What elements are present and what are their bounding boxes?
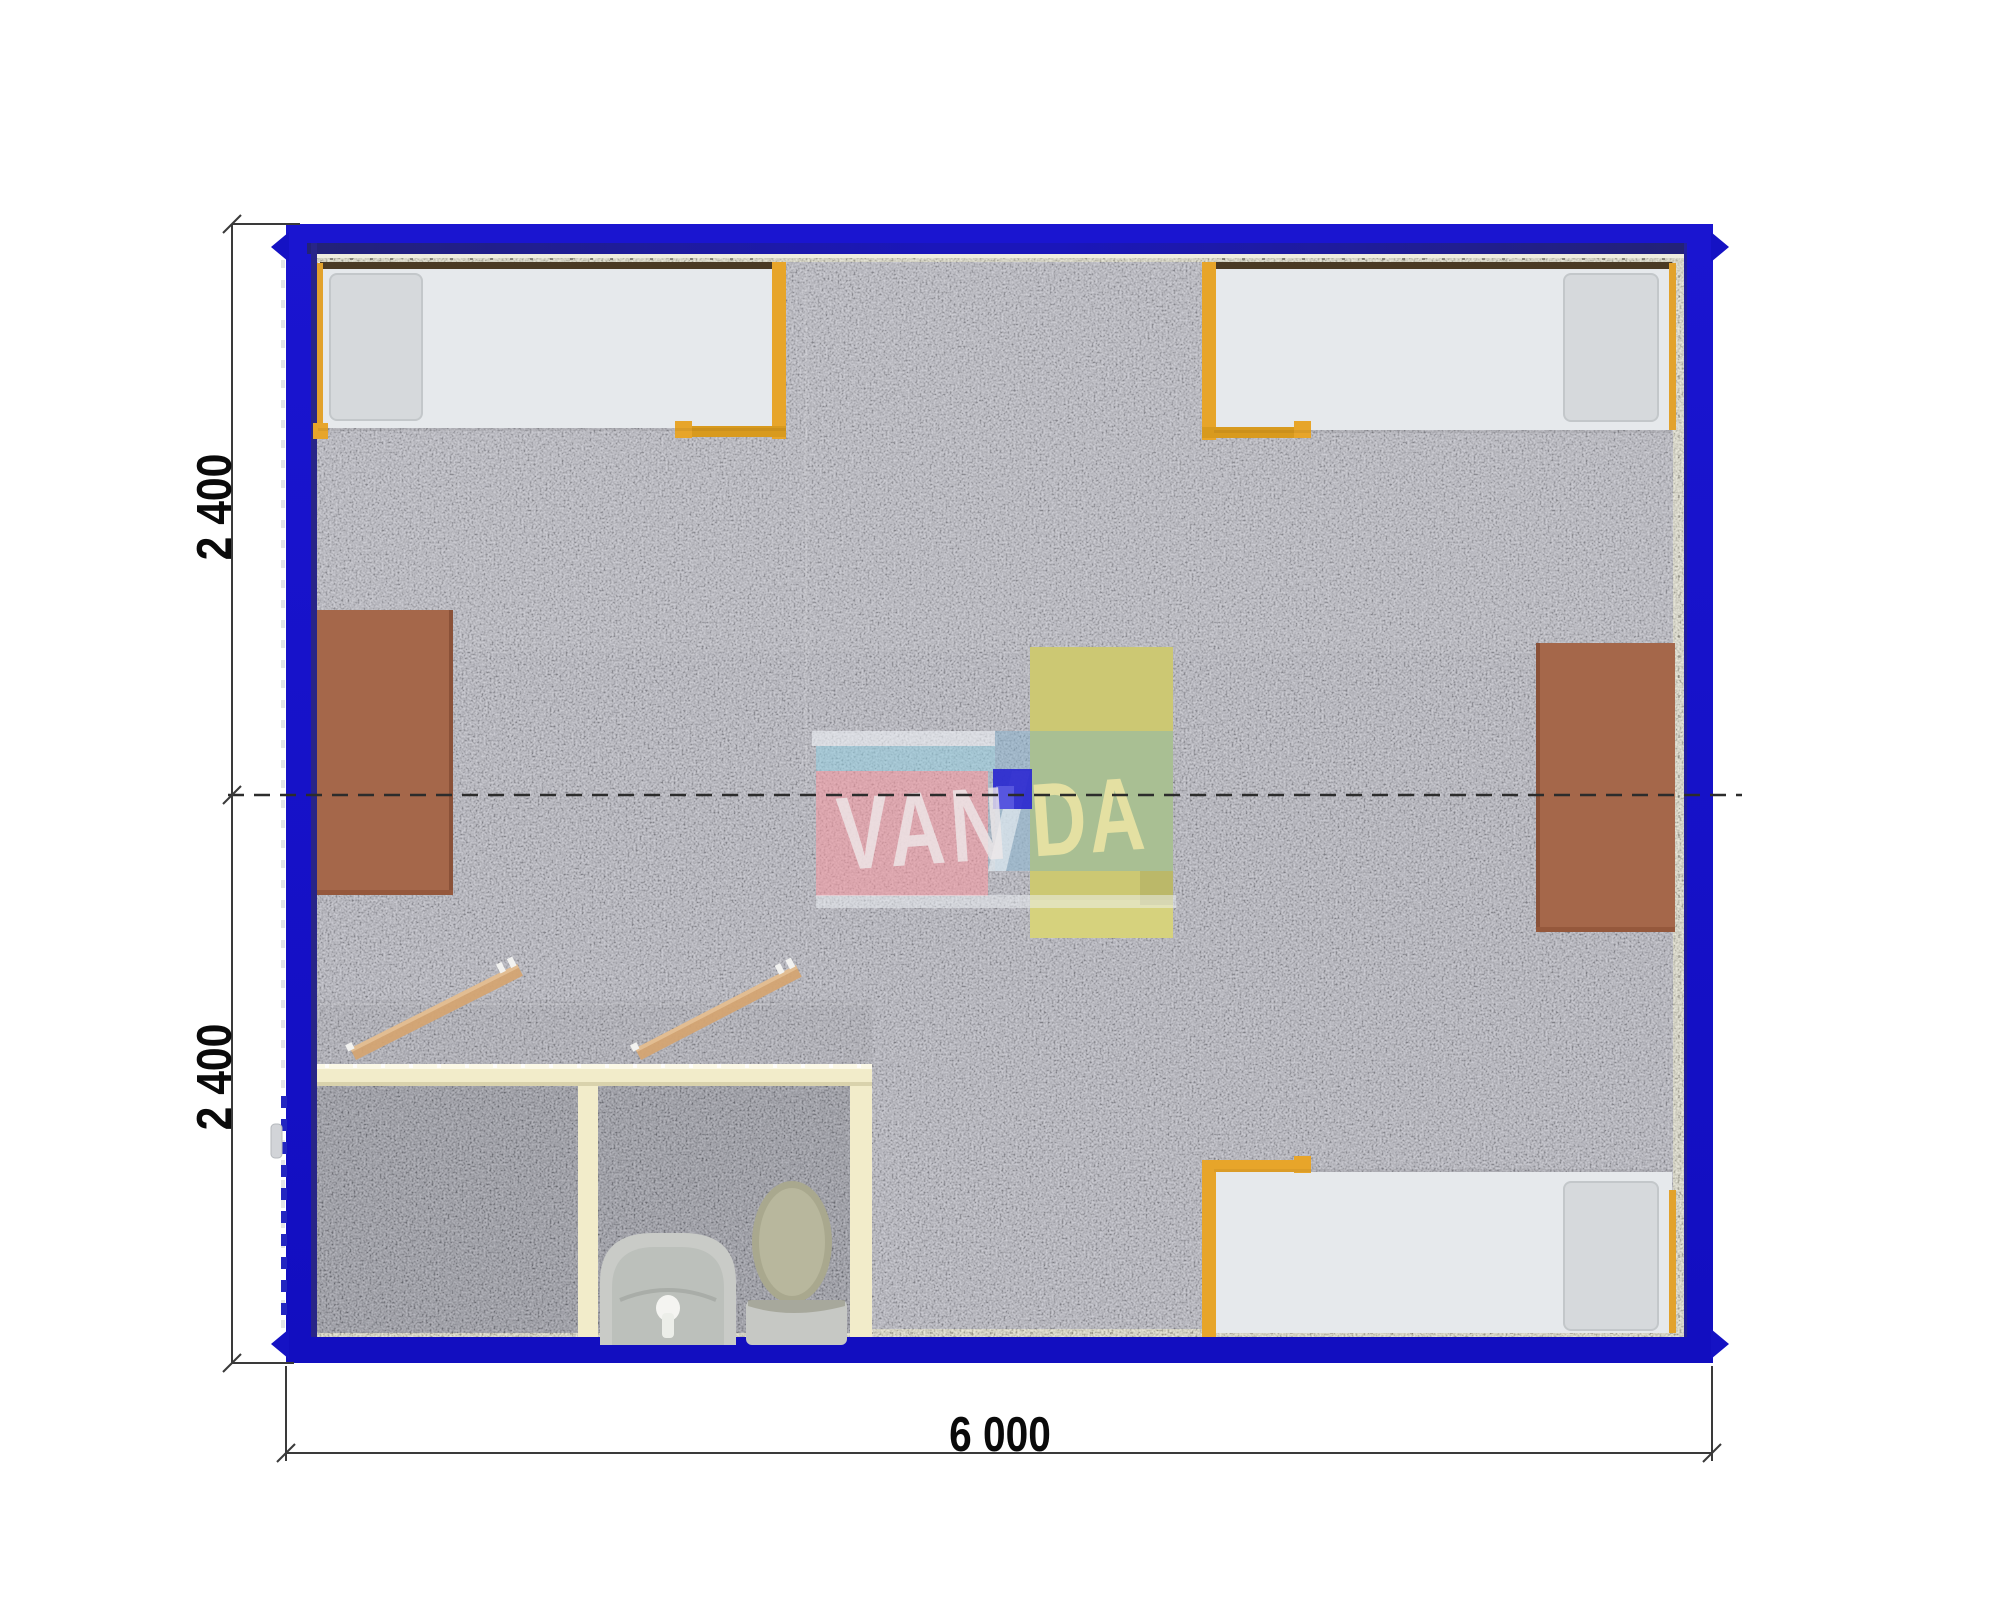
svg-text:VAN: VAN [833,765,1015,893]
svg-text:6 000: 6 000 [949,1406,1051,1461]
svg-text:2 400: 2 400 [186,454,241,561]
svg-text:2 400: 2 400 [186,1024,241,1131]
svg-text:DA: DA [1027,755,1150,879]
